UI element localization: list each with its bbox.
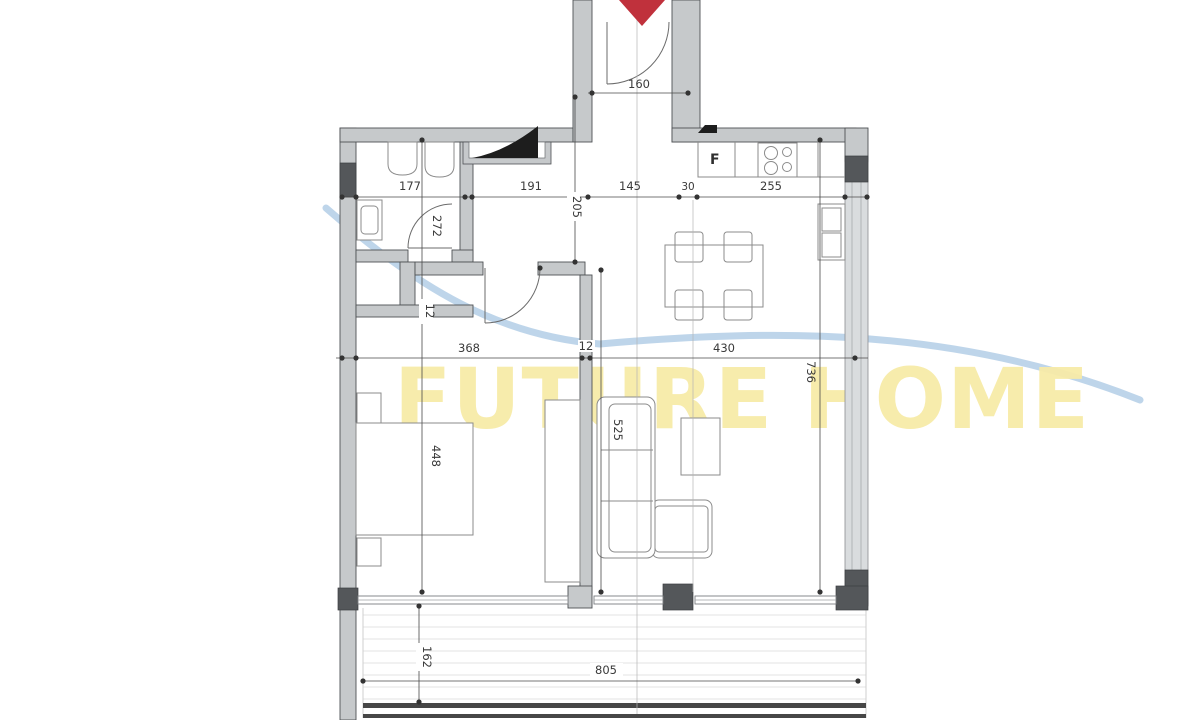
burner-small-icon <box>783 148 792 157</box>
sofa-chaise <box>652 500 712 558</box>
burner-small-icon <box>783 163 792 172</box>
terrace-outer-edge <box>363 714 866 718</box>
entrance-arrow-icon <box>619 0 665 26</box>
wall-left-exterior <box>340 128 356 720</box>
wall-top-left <box>340 128 573 142</box>
dim-label-terrace-depth: 162 <box>420 646 434 668</box>
dim-label-bedroom-width: 368 <box>458 341 480 355</box>
dim-label-hall-width: 191 <box>520 179 542 193</box>
column-right-top <box>845 156 868 182</box>
coffee-table <box>681 418 720 475</box>
fridge-label: F <box>710 152 720 168</box>
wall-vestibule-left <box>573 0 592 142</box>
dim-label-hall-mid: 145 <box>619 179 641 193</box>
sink-basin <box>361 206 378 234</box>
dim-label-living-height: 525 <box>611 419 625 441</box>
dim-label-bath-height: 272 <box>430 215 444 237</box>
wall-bathroom-bottom-right <box>452 250 473 262</box>
chair <box>724 290 752 320</box>
terrace-front-edge <box>363 703 866 708</box>
sink-cabinet-bowl <box>822 233 841 257</box>
wall-door-stub <box>538 262 585 275</box>
column-bottom-right <box>836 586 868 610</box>
dim-label-right-height: 736 <box>804 361 818 383</box>
cooktop <box>758 143 797 177</box>
wall-bedroom-living-divider <box>580 275 592 594</box>
chair <box>724 232 752 262</box>
toilet <box>388 142 417 175</box>
wall-vestibule-right <box>672 0 700 142</box>
column-left-top <box>340 163 356 197</box>
bedroom-door-swing <box>485 268 540 323</box>
wall-closet-divider <box>400 262 415 305</box>
window-band-bottom <box>358 596 836 604</box>
column-bottom-mid <box>663 584 693 610</box>
dim-label-wall-left: 12 <box>423 304 437 319</box>
bidet <box>425 142 454 177</box>
chair <box>675 232 703 262</box>
entrance-door-swing <box>607 22 669 84</box>
nightstand <box>357 538 381 566</box>
dim-label-shaft: 30 <box>681 181 694 193</box>
bed <box>356 423 473 535</box>
nightstand <box>357 393 381 423</box>
dim-label-entrance: 160 <box>628 77 650 91</box>
sink-cabinet-bowl <box>822 208 841 231</box>
column-bottom-left <box>338 588 358 610</box>
floor-plan-canvas: FUTURE HOME <box>0 0 1200 720</box>
dim-label-living-width: 430 <box>713 341 735 355</box>
chair <box>675 290 703 320</box>
sofa-body <box>597 397 655 558</box>
bathroom-door-swing <box>408 204 452 248</box>
dim-label-kitchen-width: 255 <box>760 179 782 193</box>
wardrobe <box>545 400 580 582</box>
wall-top-kitchen <box>672 128 856 142</box>
wall-bathroom-bottom-left <box>356 250 408 262</box>
burner-large-icon <box>765 147 778 160</box>
dim-label-terrace-width: 805 <box>595 663 617 677</box>
dim-label-wall-mid: 12 <box>579 339 594 353</box>
dim-label-hall-depth: 205 <box>570 196 584 218</box>
wall-bedroom-top-left <box>356 305 473 317</box>
window-wall-right <box>845 162 868 604</box>
wall-hall-bottom <box>415 262 483 275</box>
terrace-deck-lines <box>363 615 866 699</box>
dim-label-bath-width: 177 <box>399 179 421 193</box>
floor-plan-drawing: FUTURE HOME <box>0 0 1200 720</box>
burner-large-icon <box>765 162 778 175</box>
dim-label-bedroom-height: 448 <box>429 445 443 467</box>
wall-bottom-stub <box>568 586 592 608</box>
watermark-text: FUTURE HOME <box>394 350 1090 448</box>
